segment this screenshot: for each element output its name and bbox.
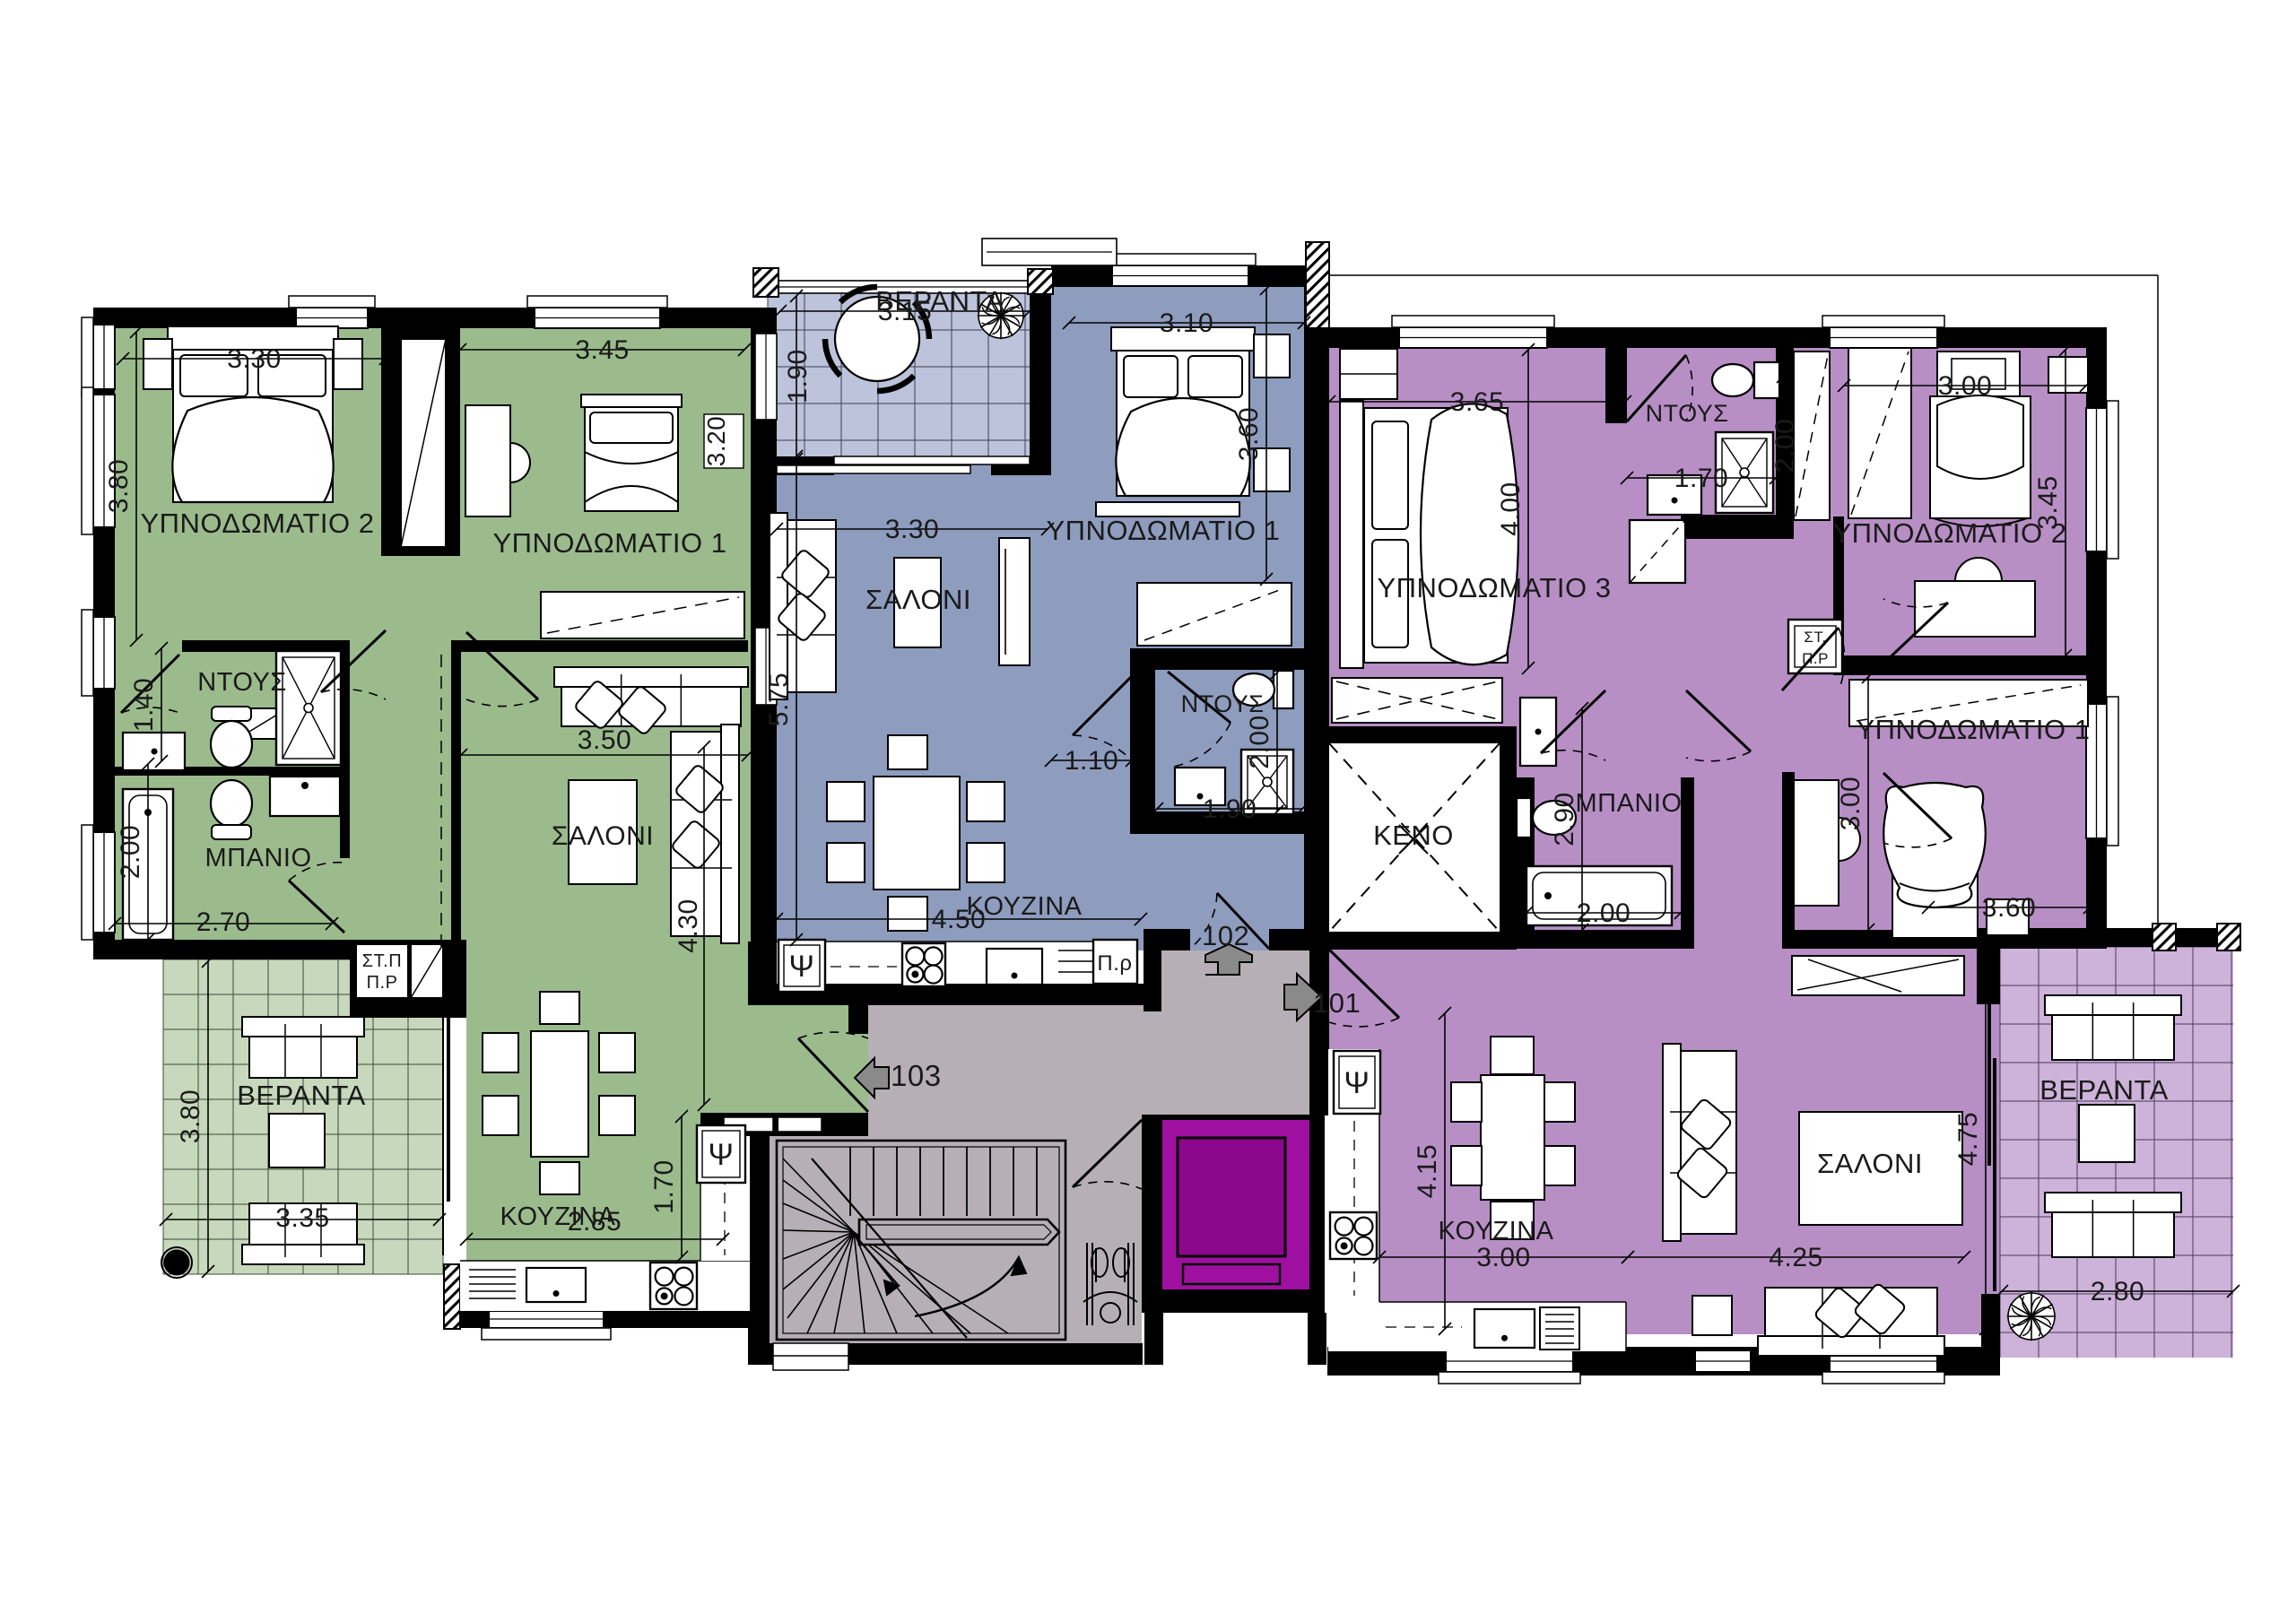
svg-text:ΣΑΛΟΝΙ: ΣΑΛΟΝΙ	[1817, 1148, 1923, 1179]
svg-text:Ψ: Ψ	[709, 1138, 735, 1172]
svg-text:4.00: 4.00	[1496, 482, 1526, 535]
svg-text:Ψ: Ψ	[1344, 1066, 1370, 1100]
svg-text:2.70: 2.70	[196, 907, 250, 937]
svg-text:2.00: 2.00	[1245, 715, 1274, 768]
svg-text:ΚΟΥΖΙΝΑ: ΚΟΥΖΙΝΑ	[1439, 1217, 1554, 1245]
svg-text:ΥΠΝΟΔΩΜΑΤΙΟ 3: ΥΠΝΟΔΩΜΑΤΙΟ 3	[1377, 572, 1611, 603]
svg-text:ΣΑΛΟΝΙ: ΣΑΛΟΝΙ	[552, 821, 654, 851]
svg-text:3.65: 3.65	[1450, 387, 1504, 417]
svg-text:ΚΟΥΖΙΝΑ: ΚΟΥΖΙΝΑ	[967, 892, 1083, 921]
svg-text:ΜΠΑΝΙΟ: ΜΠΑΝΙΟ	[1576, 789, 1683, 818]
svg-text:3.35: 3.35	[275, 1203, 329, 1233]
svg-text:ΥΠΝΟΔΩΜΑΤΙΟ 2: ΥΠΝΟΔΩΜΑΤΙΟ 2	[1832, 517, 2066, 549]
svg-text:1.10: 1.10	[1065, 746, 1118, 776]
svg-text:102: 102	[1202, 920, 1249, 951]
svg-text:ΜΠΑΝΙΟ: ΜΠΑΝΙΟ	[205, 844, 312, 872]
svg-text:ΣΤ.Π: ΣΤ.Π	[362, 951, 402, 971]
svg-text:ΝΤΟΥΣ: ΝΤΟΥΣ	[1181, 690, 1265, 717]
svg-text:ΒΕΡΑΝΤΑ: ΒΕΡΑΝΤΑ	[875, 285, 1004, 317]
svg-text:3.80: 3.80	[176, 1089, 205, 1143]
svg-text:2.80: 2.80	[2091, 1277, 2144, 1306]
svg-text:ΣΑΛΟΝΙ: ΣΑΛΟΝΙ	[865, 584, 971, 615]
svg-text:1.70: 1.70	[649, 1159, 679, 1213]
svg-text:4.75: 4.75	[1953, 1112, 1983, 1166]
svg-text:ΝΤΟΥΣ: ΝΤΟΥΣ	[1646, 400, 1729, 427]
svg-text:4.25: 4.25	[1769, 1243, 1822, 1272]
svg-text:2.00: 2.00	[1770, 419, 1800, 473]
svg-text:3.80: 3.80	[104, 459, 134, 513]
svg-text:3.00: 3.00	[1836, 777, 1865, 830]
svg-text:5.75: 5.75	[764, 673, 794, 726]
svg-text:1.70: 1.70	[1674, 464, 1728, 493]
svg-text:Ψ: Ψ	[789, 950, 815, 984]
svg-text:3.30: 3.30	[227, 344, 281, 374]
svg-text:ΝΤΟΥΣ: ΝΤΟΥΣ	[197, 668, 287, 697]
svg-text:2.00: 2.00	[1577, 898, 1631, 928]
svg-text:3.00: 3.00	[1476, 1243, 1530, 1272]
svg-text:2.00: 2.00	[116, 825, 145, 879]
svg-text:ΒΕΡΑΝΤΑ: ΒΕΡΑΝΤΑ	[2039, 1074, 2169, 1106]
svg-text:ΥΠΝΟΔΩΜΑΤΙΟ 1: ΥΠΝΟΔΩΜΑΤΙΟ 1	[492, 527, 726, 559]
svg-text:3.00: 3.00	[1938, 371, 1992, 401]
svg-text:103: 103	[891, 1059, 942, 1092]
svg-text:ΚΟΥΖΙΝΑ: ΚΟΥΖΙΝΑ	[500, 1202, 616, 1231]
svg-text:3.20: 3.20	[702, 416, 730, 467]
svg-text:ΚΕΝΟ: ΚΕΝΟ	[1373, 820, 1454, 851]
svg-text:3.10: 3.10	[1160, 308, 1213, 338]
svg-text:3.60: 3.60	[1982, 893, 2036, 923]
svg-text:Π.ρ: Π.ρ	[1097, 951, 1132, 976]
svg-text:3.45: 3.45	[575, 335, 629, 365]
svg-text:4.30: 4.30	[674, 898, 703, 952]
svg-text:101: 101	[1313, 987, 1361, 1019]
svg-text:3.30: 3.30	[885, 515, 939, 544]
svg-text:1.90: 1.90	[1203, 794, 1257, 824]
svg-text:ΥΠΝΟΔΩΜΑΤΙΟ 1: ΥΠΝΟΔΩΜΑΤΙΟ 1	[1856, 714, 2090, 745]
svg-text:3.50: 3.50	[578, 725, 631, 755]
svg-text:Π.Ρ: Π.Ρ	[367, 973, 398, 993]
svg-text:3.60: 3.60	[1234, 407, 1264, 461]
svg-text:ΥΠΝΟΔΩΜΑΤΙΟ 1: ΥΠΝΟΔΩΜΑΤΙΟ 1	[1046, 515, 1280, 546]
svg-text:1.90: 1.90	[783, 349, 813, 403]
svg-text:4.15: 4.15	[1413, 1144, 1442, 1198]
svg-text:ΒΕΡΑΝΤΑ: ΒΕΡΑΝΤΑ	[237, 1080, 366, 1111]
svg-text:1.40: 1.40	[129, 678, 159, 732]
svg-text:ΥΠΝΟΔΩΜΑΤΙΟ 2: ΥΠΝΟΔΩΜΑΤΙΟ 2	[140, 508, 374, 539]
